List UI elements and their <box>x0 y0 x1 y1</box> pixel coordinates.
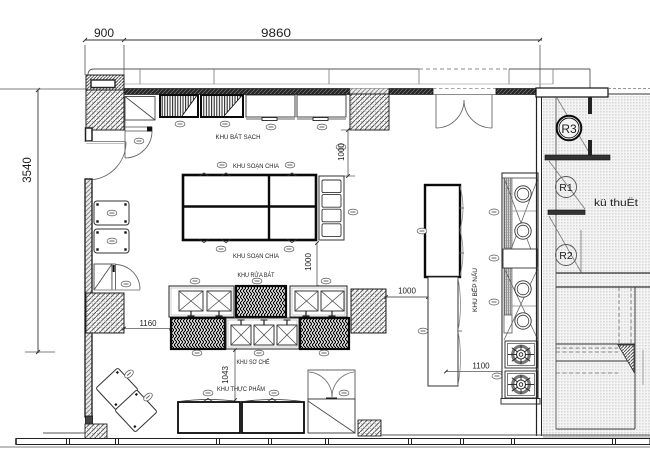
svg-text:kü thuËt: kü thuËt <box>594 197 638 209</box>
svg-text:1100: 1100 <box>472 362 490 371</box>
svg-text:KHU THỰC PHẨM: KHU THỰC PHẨM <box>217 384 265 393</box>
svg-text:KHU BÁT SẠCH: KHU BÁT SẠCH <box>216 132 261 141</box>
svg-text:KHU SOẠN CHIA: KHU SOẠN CHIA <box>233 253 280 260</box>
svg-text:3540: 3540 <box>22 157 34 183</box>
svg-text:R1: R1 <box>559 182 573 194</box>
svg-text:1043: 1043 <box>221 366 230 384</box>
svg-text:R3: R3 <box>561 122 577 136</box>
svg-text:1000: 1000 <box>337 143 346 161</box>
svg-text:KHU RỬA BÁT: KHU RỬA BÁT <box>238 270 275 279</box>
svg-text:1000: 1000 <box>398 287 416 296</box>
svg-text:900: 900 <box>94 26 114 40</box>
svg-text:KHU SOẠN CHIA: KHU SOẠN CHIA <box>233 163 280 170</box>
svg-text:9860: 9860 <box>261 26 291 40</box>
svg-text:1160: 1160 <box>140 319 158 328</box>
svg-text:1000: 1000 <box>304 253 313 271</box>
svg-text:R2: R2 <box>559 250 573 262</box>
